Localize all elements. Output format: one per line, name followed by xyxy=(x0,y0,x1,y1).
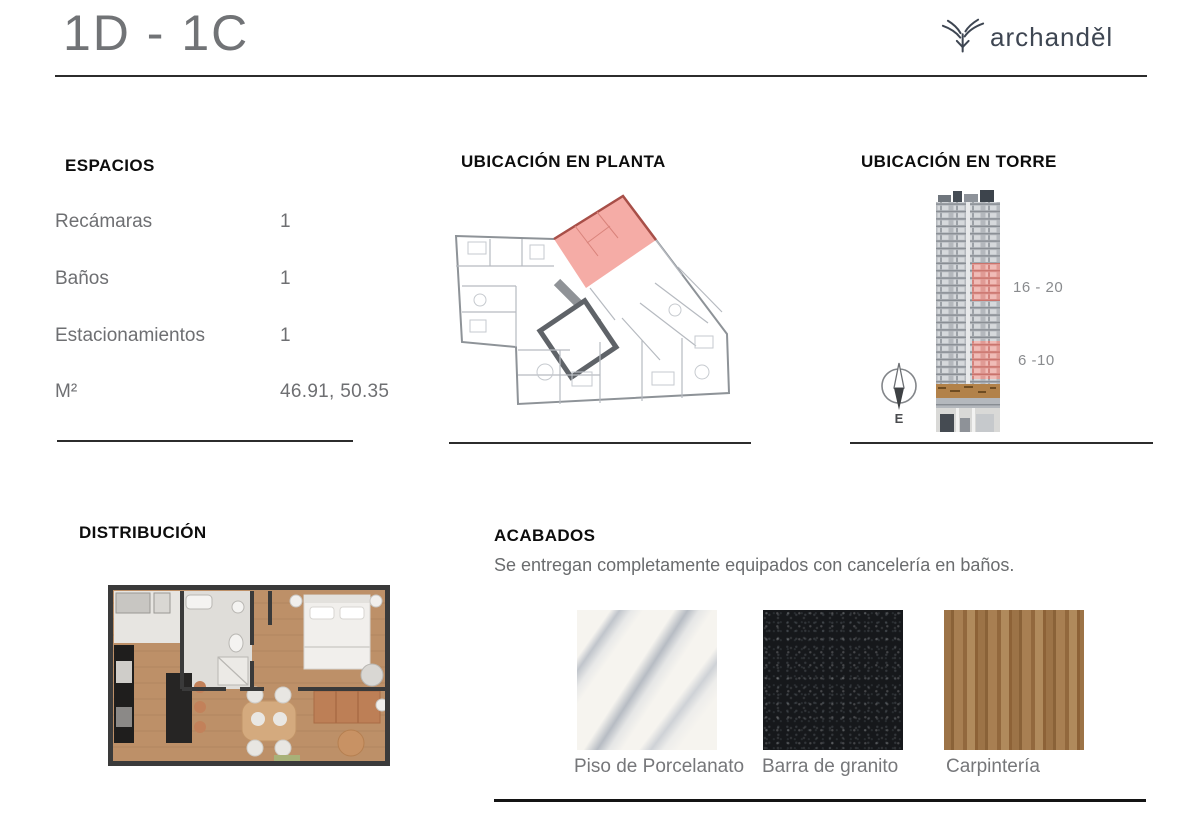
floor-range-lower-label: 6 -10 xyxy=(1018,352,1055,369)
acabados-heading: ACABADOS xyxy=(494,526,595,546)
spec-label-estacionamientos: Estacionamientos xyxy=(55,325,205,347)
apt-dining-chair xyxy=(247,740,263,756)
spec-value-banos: 1 xyxy=(280,268,291,290)
brand-name: archanděl xyxy=(990,22,1113,53)
compass-east-label: E xyxy=(895,411,904,426)
tower-roof xyxy=(938,190,994,202)
apt-plate xyxy=(273,712,287,726)
espacios-heading: ESPACIOS xyxy=(65,156,155,176)
apt-sofa xyxy=(314,691,380,723)
acabados-subtitle: Se entregan completamente equipados con … xyxy=(494,555,1014,576)
tower-highlight-16-20 xyxy=(972,263,1000,301)
torre-heading: UBICACIÓN EN TORRE xyxy=(861,152,1057,172)
apt-doormat xyxy=(274,755,300,761)
brand-bird-icon xyxy=(938,18,988,56)
espacios-divider xyxy=(57,440,353,442)
planta-divider xyxy=(449,442,751,444)
apt-kitchen-counter xyxy=(114,645,134,743)
page-title: 1D - 1C xyxy=(63,4,249,62)
apt-kitchen-island xyxy=(166,673,192,743)
material-swatch-granito xyxy=(763,610,903,750)
compass-needle-north xyxy=(894,363,904,388)
material-swatch-carpinteria xyxy=(944,610,1084,750)
apt-dining-table xyxy=(242,701,296,741)
floorplan-distribucion xyxy=(108,585,390,766)
apt-bed xyxy=(304,595,370,669)
spec-label-recamaras: Recámaras xyxy=(55,211,152,233)
apt-nightstand xyxy=(290,595,302,607)
tower-highlight-6-10 xyxy=(972,341,1000,379)
tower-elevation xyxy=(936,190,1000,432)
apt-pillow xyxy=(310,607,334,619)
floorplan-planta xyxy=(450,190,772,422)
spec-value-estacionamientos: 1 xyxy=(280,325,291,347)
spec-value-recamaras: 1 xyxy=(280,211,291,233)
apt-kitchen-cabinets xyxy=(116,593,150,613)
material-label-granito: Barra de granito xyxy=(762,756,922,778)
top-divider xyxy=(55,75,1147,77)
planta-heading: UBICACIÓN EN PLANTA xyxy=(461,152,666,172)
apt-round-chair xyxy=(361,664,383,686)
material-label-porcelanato: Piso de Porcelanato xyxy=(574,756,754,778)
spec-label-m2: M² xyxy=(55,381,77,403)
floor-range-upper-label: 16 - 20 xyxy=(1013,279,1063,296)
apt-stool xyxy=(194,721,206,733)
brochure-page: 1D - 1C archanděl ESPACIOS Recámaras 1 B… xyxy=(0,0,1200,813)
apt-dining-chair xyxy=(275,687,291,703)
apt-dining-chair xyxy=(275,740,291,756)
tower-lower-floors xyxy=(936,398,1000,408)
compass: E xyxy=(877,360,921,426)
apt-stool xyxy=(194,701,206,713)
material-swatch-porcelanato xyxy=(577,610,717,750)
bottom-divider xyxy=(494,799,1146,802)
spec-value-m2: 46.91, 50.35 xyxy=(280,381,389,403)
apt-fridge xyxy=(154,593,170,613)
torre-divider xyxy=(850,442,1153,444)
apt-plate xyxy=(251,712,265,726)
spec-label-banos: Baños xyxy=(55,268,109,290)
apt-sink xyxy=(232,601,244,613)
tower-core-strip xyxy=(966,202,970,384)
apt-nightstand xyxy=(370,595,382,607)
compass-needle-south xyxy=(894,388,904,410)
apt-bathtub xyxy=(186,595,212,609)
brand-logo: archanděl xyxy=(938,18,1113,56)
apt-round-rug xyxy=(338,730,364,756)
apt-toilet xyxy=(229,634,243,652)
distribucion-heading: DISTRIBUCIÓN xyxy=(79,523,207,543)
apt-pillow xyxy=(340,607,364,619)
material-label-carpinteria: Carpintería xyxy=(946,756,1076,778)
